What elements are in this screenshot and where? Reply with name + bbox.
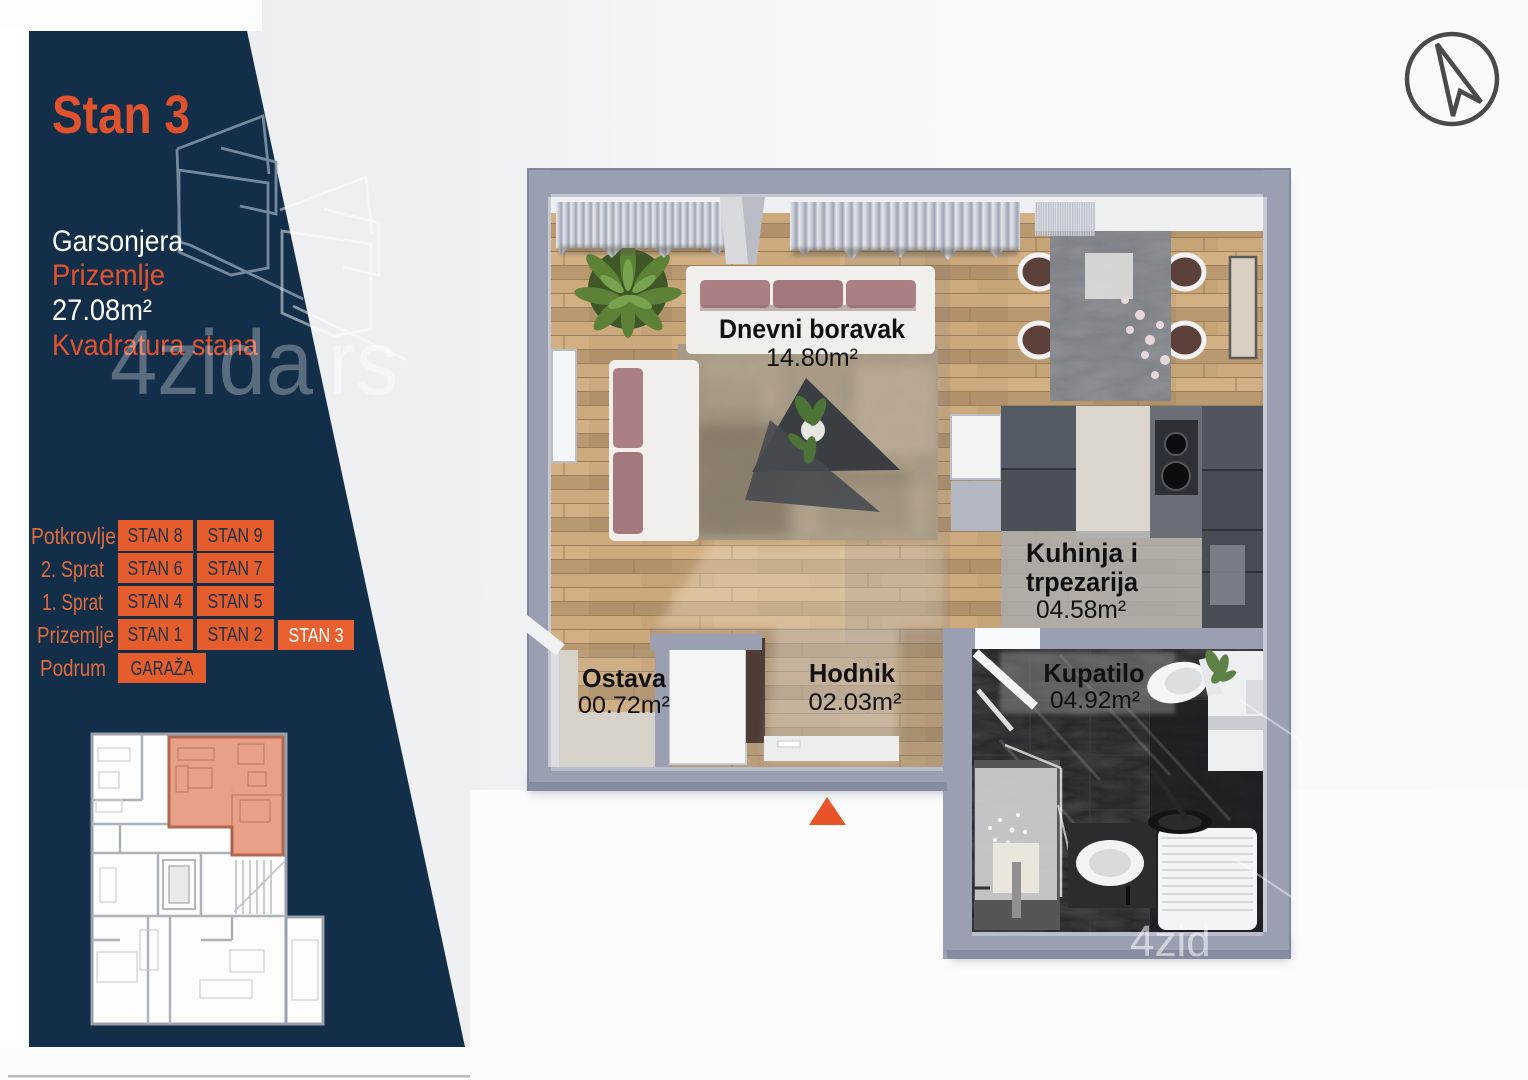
svg-text:4zid: 4zid <box>1130 917 1211 966</box>
svg-text:14.80m²: 14.80m² <box>766 344 858 372</box>
svg-text:STAN 5: STAN 5 <box>208 591 263 613</box>
svg-text:STAN 2: STAN 2 <box>208 624 263 646</box>
svg-text:trpezarija: trpezarija <box>1026 567 1139 597</box>
svg-text:Dnevni boravak: Dnevni boravak <box>719 314 906 344</box>
svg-text:rs: rs <box>328 312 398 414</box>
svg-text:Prizemlje: Prizemlje <box>52 259 165 292</box>
svg-text:4zida: 4zida <box>110 312 314 414</box>
svg-text:STAN 4: STAN 4 <box>128 591 183 613</box>
svg-text:Ostava: Ostava <box>582 663 667 693</box>
svg-text:STAN 7: STAN 7 <box>208 558 263 580</box>
svg-text:Kupatilo: Kupatilo <box>1044 658 1145 688</box>
svg-text:Garsonjera: Garsonjera <box>52 225 183 258</box>
svg-text:STAN 6: STAN 6 <box>128 558 183 580</box>
svg-text:Potkrovlje: Potkrovlje <box>31 523 116 549</box>
svg-text:Podrum: Podrum <box>40 655 106 681</box>
svg-text:02.03m²: 02.03m² <box>809 689 902 716</box>
svg-text:2. Sprat: 2. Sprat <box>41 556 104 582</box>
svg-text:STAN 3: STAN 3 <box>289 625 344 647</box>
svg-text:STAN 8: STAN 8 <box>128 525 183 547</box>
svg-text:Hodnik: Hodnik <box>809 658 896 688</box>
svg-text:STAN 1: STAN 1 <box>128 624 183 646</box>
svg-text:04.58m²: 04.58m² <box>1036 596 1126 624</box>
svg-text:Stan 3: Stan 3 <box>52 85 190 145</box>
svg-text:1. Sprat: 1. Sprat <box>42 589 103 615</box>
svg-text:Kuhinja i: Kuhinja i <box>1026 538 1138 568</box>
svg-text:04.92m²: 04.92m² <box>1050 687 1140 714</box>
svg-text:GARAŽA: GARAŽA <box>131 657 194 680</box>
svg-text:STAN 9: STAN 9 <box>208 525 263 547</box>
svg-text:Prizemlje: Prizemlje <box>37 622 114 648</box>
svg-text:00.72m²: 00.72m² <box>578 692 670 719</box>
